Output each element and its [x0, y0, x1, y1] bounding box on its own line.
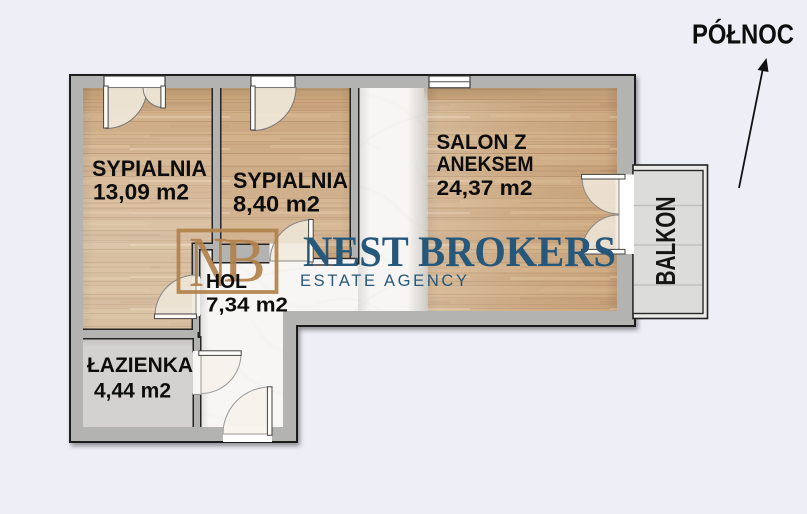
- svg-text:ŁAZIENKA: ŁAZIENKA: [87, 353, 193, 377]
- svg-text:7,34 m2: 7,34 m2: [206, 294, 288, 317]
- svg-text:SYPIALNIA: SYPIALNIA: [92, 156, 207, 181]
- svg-text:13,09 m2: 13,09 m2: [93, 180, 189, 205]
- svg-text:4,44 m2: 4,44 m2: [94, 379, 171, 403]
- svg-text:BALKON: BALKON: [650, 197, 681, 286]
- svg-text:NEST BROKERS: NEST BROKERS: [303, 228, 616, 276]
- svg-text:SALON Z: SALON Z: [437, 131, 527, 154]
- svg-text:ANEKSEM: ANEKSEM: [437, 153, 534, 176]
- svg-text:HOL: HOL: [206, 270, 247, 293]
- svg-text:24,37 m2: 24,37 m2: [437, 177, 533, 200]
- svg-text:SYPIALNIA: SYPIALNIA: [233, 168, 348, 193]
- svg-text:8,40 m2: 8,40 m2: [233, 192, 320, 217]
- svg-text:PÓŁNOC: PÓŁNOC: [692, 19, 794, 50]
